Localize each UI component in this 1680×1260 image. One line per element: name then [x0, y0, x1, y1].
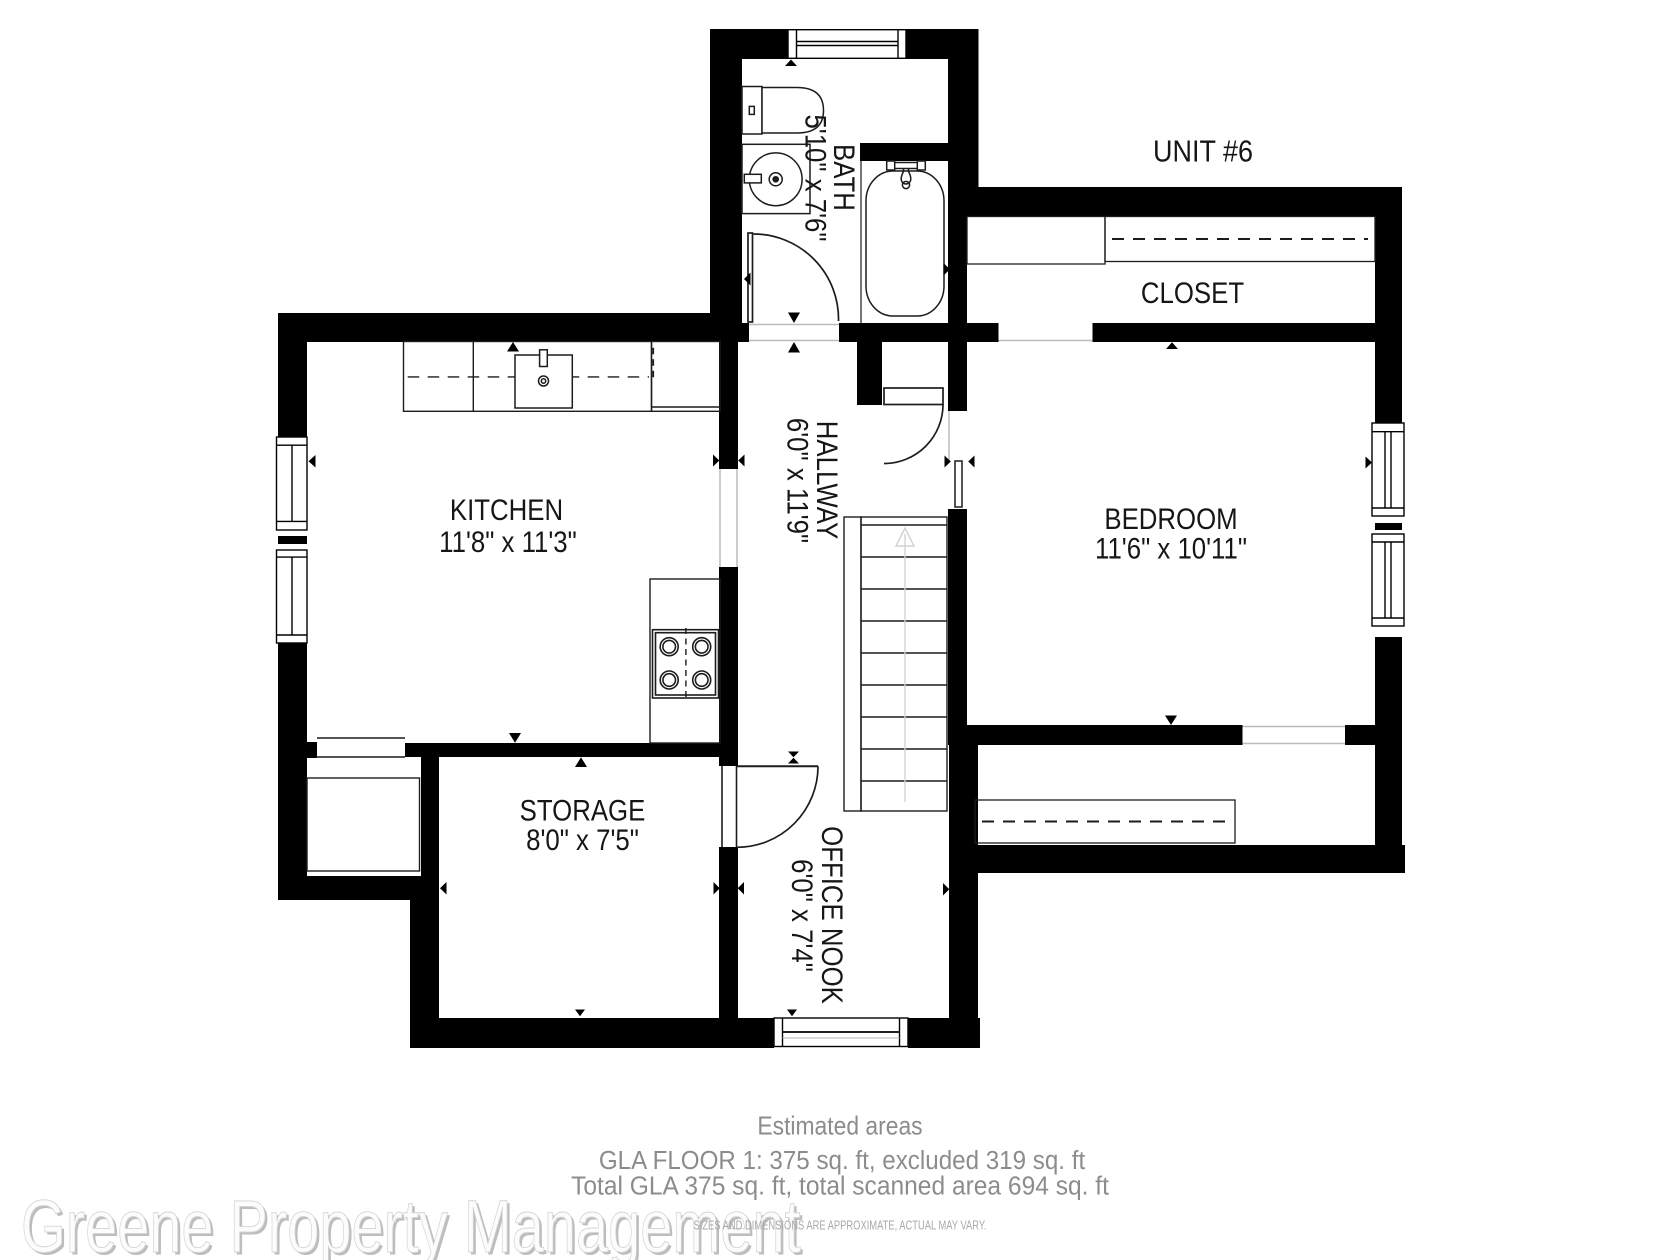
svg-text:8'0" x 7'5": 8'0" x 7'5": [526, 823, 639, 856]
svg-text:SIZES AND DIMENSIONS ARE APPRO: SIZES AND DIMENSIONS ARE APPROXIMATE, AC…: [693, 1219, 986, 1233]
svg-text:HALLWAY: HALLWAY: [811, 421, 844, 540]
svg-text:11'8" x 11'3": 11'8" x 11'3": [439, 525, 577, 558]
svg-text:5'10" x 7'6": 5'10" x 7'6": [799, 114, 832, 241]
svg-text:GLA FLOOR 1: 375 sq. ft, exclu: GLA FLOOR 1: 375 sq. ft, excluded 319 sq…: [599, 1146, 1085, 1175]
svg-text:6'0" x 11'9": 6'0" x 11'9": [781, 418, 814, 543]
svg-text:Total GLA 375 sq. ft, total sc: Total GLA 375 sq. ft, total scanned area…: [571, 1172, 1109, 1201]
svg-text:CLOSET: CLOSET: [1141, 276, 1244, 309]
svg-text:KITCHEN: KITCHEN: [450, 493, 563, 526]
svg-text:11'6" x 10'11": 11'6" x 10'11": [1095, 532, 1247, 565]
svg-text:6'0" x 7'4": 6'0" x 7'4": [786, 859, 819, 972]
svg-text:UNIT #6: UNIT #6: [1153, 135, 1253, 169]
svg-text:Estimated areas: Estimated areas: [757, 1112, 922, 1141]
svg-text:STORAGE: STORAGE: [520, 794, 646, 827]
svg-text:OFFICE NOOK: OFFICE NOOK: [816, 826, 849, 1004]
svg-text:BEDROOM: BEDROOM: [1104, 502, 1237, 535]
